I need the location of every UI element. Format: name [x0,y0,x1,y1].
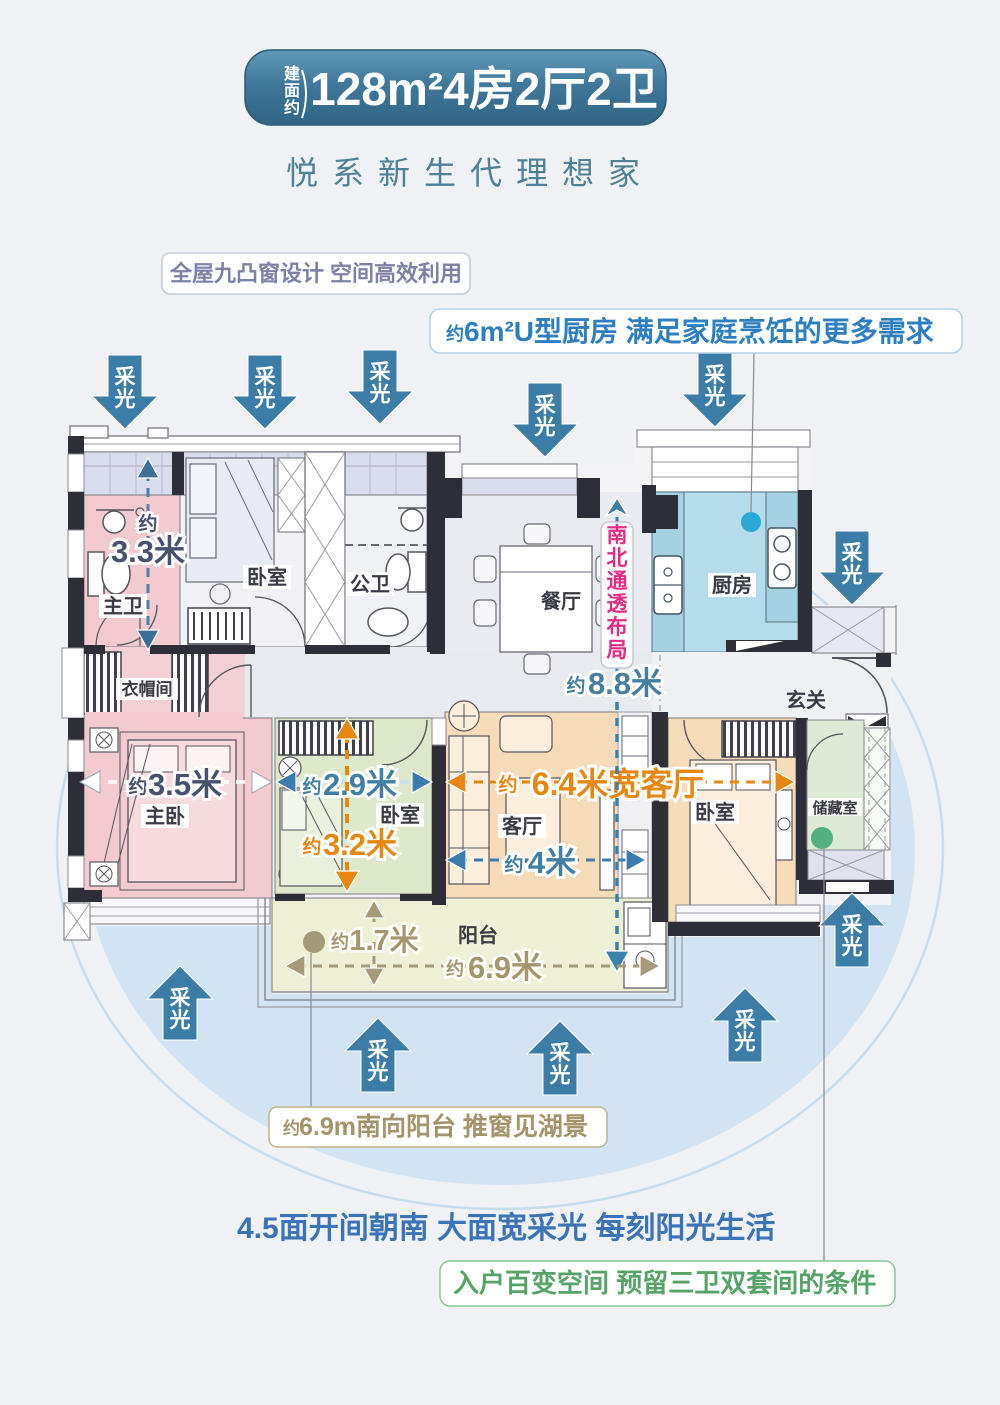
svg-text:阳台: 阳台 [458,923,498,947]
svg-text:4米: 4米 [528,845,576,880]
svg-text:约: 约 [566,674,585,697]
svg-text:主卧: 主卧 [145,804,185,828]
svg-text:2.9米: 2.9米 [323,767,397,802]
svg-text:储藏室: 储藏室 [812,799,857,817]
svg-text:餐厅: 餐厅 [541,589,581,613]
svg-text:约: 约 [498,773,517,796]
svg-text:玄关: 玄关 [786,688,826,712]
svg-text:局: 局 [607,639,628,662]
svg-text:约: 约 [446,958,464,979]
svg-text:厨房: 厨房 [712,573,752,597]
svg-text:北: 北 [607,547,628,570]
svg-text:128m²4房2厅2卫: 128m²4房2厅2卫 [310,63,658,115]
svg-text:布: 布 [607,615,628,639]
svg-text:南: 南 [607,523,628,547]
svg-text:6m²U型厨房 满足家庭烹饪的更多需求: 6m²U型厨房 满足家庭烹饪的更多需求 [464,315,934,347]
svg-text:约: 约 [138,512,157,535]
svg-text:约: 约 [302,835,321,858]
svg-text:建: 建 [284,65,300,83]
svg-text:3.3米: 3.3米 [111,534,185,569]
svg-text:卧室: 卧室 [380,803,420,827]
svg-text:面: 面 [284,82,300,100]
svg-text:6.9米: 6.9米 [468,950,542,985]
svg-text:1.7米: 1.7米 [349,924,418,957]
svg-text:衣帽间: 衣帽间 [122,679,173,699]
svg-text:公卫: 公卫 [350,573,390,596]
svg-text:入户百变空间 预留三卫双套间的条件: 入户百变空间 预留三卫双套间的条件 [453,1268,876,1298]
svg-text:悦系新生代理想家: 悦系新生代理想家 [286,155,654,191]
svg-text:约: 约 [283,1118,300,1138]
svg-text:透: 透 [607,593,629,616]
svg-text:约: 约 [331,931,349,952]
svg-text:约: 约 [128,775,147,798]
svg-text:卧室: 卧室 [695,800,735,824]
svg-text:3.2米: 3.2米 [323,827,397,862]
svg-text:4.5面开间朝南 大面宽采光 每刻阳光生活: 4.5面开间朝南 大面宽采光 每刻阳光生活 [237,1211,775,1245]
svg-text:通: 通 [607,570,628,593]
svg-text:约: 约 [284,98,300,117]
svg-text:客厅: 客厅 [501,814,542,838]
svg-text:主卫: 主卫 [103,594,143,618]
svg-text:约: 约 [446,323,464,344]
svg-text:8.8米: 8.8米 [588,666,662,701]
svg-text:卧室: 卧室 [247,565,287,589]
svg-text:全屋九凸窗设计 空间高效利用: 全屋九凸窗设计 空间高效利用 [169,261,462,286]
svg-text:约: 约 [302,775,321,798]
svg-text:约: 约 [504,853,523,876]
svg-text:3.5米: 3.5米 [148,767,222,802]
svg-text:6.9m南向阳台 推窗见湖景: 6.9m南向阳台 推窗见湖景 [299,1112,588,1141]
